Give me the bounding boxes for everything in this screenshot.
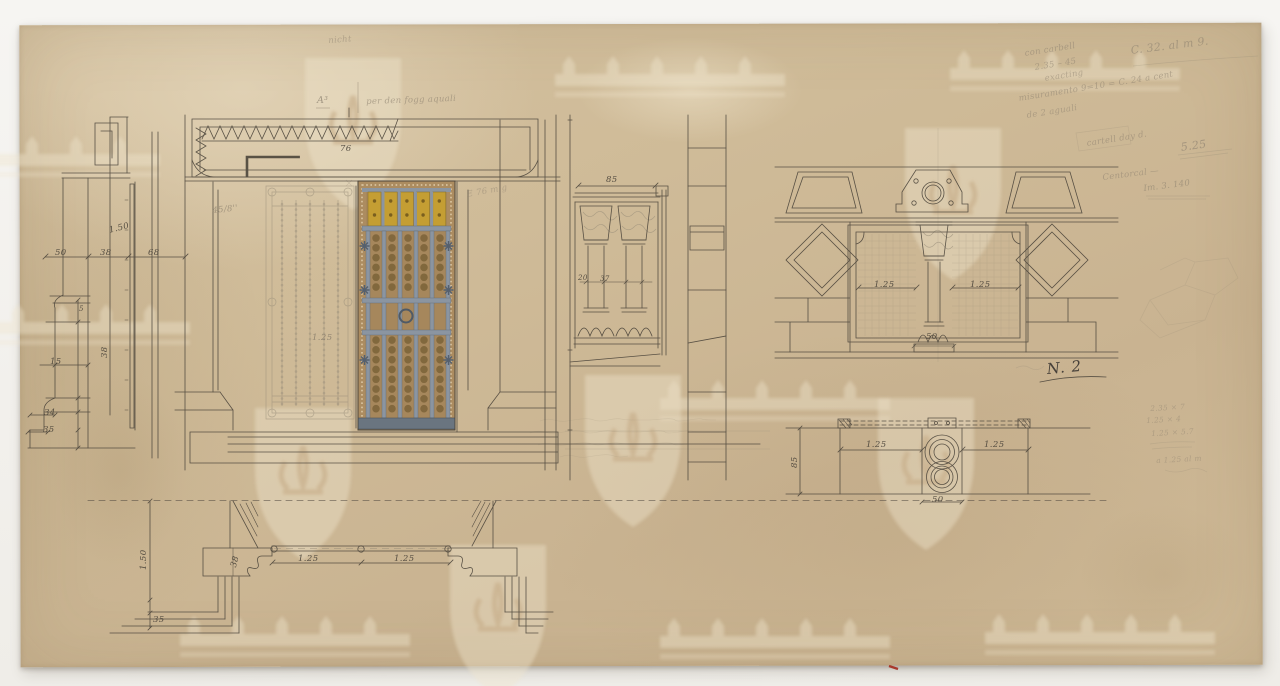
pencil-note: C. 32. al m 9.: [1130, 34, 1209, 56]
dim-label: 38: [229, 555, 242, 569]
pencil-note: 5.25: [1180, 137, 1207, 153]
dim-label: 85: [790, 456, 800, 468]
pencil-note: Im. 3. 140: [1143, 178, 1191, 194]
dim-label: 68: [148, 248, 160, 258]
dim-label: 1.50: [139, 549, 149, 570]
dim-label: 38: [100, 346, 110, 358]
pencil-note: per den fogg aquali: [366, 94, 456, 107]
dim-label: 1.25: [312, 333, 333, 343]
label-layer: 50 38 68 1.50 5 38 15 34 35 76 1.25 85 2…: [0, 0, 1280, 686]
pencil-note: misuramento 9=10 = C. 24 a cent: [1018, 70, 1174, 104]
pencil-note: E 76 m g: [466, 183, 508, 200]
dim-label: 37: [600, 275, 610, 283]
dim-label: 50: [932, 495, 944, 505]
dim-label: 35: [153, 615, 165, 625]
dim-label: 1.50: [108, 221, 130, 236]
dim-label: 76: [340, 144, 352, 154]
pencil-note: Centorcal —: [1102, 166, 1159, 183]
dim-label: 20: [578, 274, 588, 282]
photographed-architectural-drawing: { "sheet": { "number": "N. 2" }, "dimens…: [0, 0, 1280, 686]
sheet-number-label: N. 2: [1046, 357, 1083, 378]
pencil-note: de 2 aguali: [1026, 103, 1078, 121]
dim-label: 50: [926, 332, 938, 342]
dim-label: 1.25: [970, 280, 991, 290]
dim-label: 35: [43, 425, 55, 435]
dim-label: 1.25: [984, 440, 1005, 450]
dim-label: 34: [44, 408, 56, 418]
dim-label: 85: [606, 175, 618, 185]
pencil-note: cartell day d.: [1086, 129, 1148, 148]
dim-label: 1.25: [394, 554, 415, 564]
pencil-note: A³: [317, 95, 328, 106]
dim-label: 1.25: [298, 554, 319, 564]
pencil-note: 1.25 × 4: [1146, 414, 1181, 425]
pencil-note: 1.25 × 5.7: [1151, 427, 1194, 438]
pencil-note: 2.35 × 7: [1150, 402, 1185, 413]
dim-label: 50: [55, 248, 67, 258]
pencil-note: 45/8'': [212, 203, 238, 216]
dim-label: 1.25: [866, 440, 887, 450]
dim-label: 15: [50, 357, 62, 367]
pencil-note: con carbell: [1024, 41, 1076, 59]
pencil-note: nicht: [328, 34, 352, 46]
dim-label: 1.25: [874, 280, 895, 290]
pencil-note: a 1.25 al m: [1156, 454, 1202, 465]
dim-label: 5: [79, 305, 84, 313]
dim-label: 38: [100, 248, 112, 258]
